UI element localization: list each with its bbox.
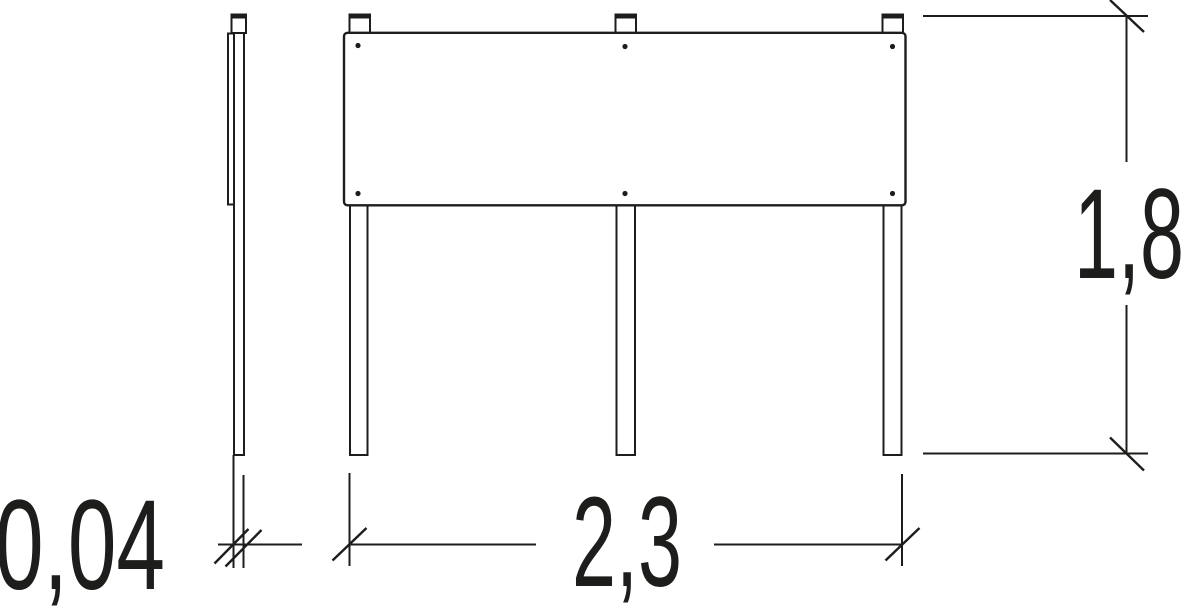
signboard-technical-drawing: 1,8 2,3 0,04 [0,0,1184,609]
screw-bottom-right [890,191,895,196]
side-view [228,14,247,456]
front-post-cap-center-top [615,14,638,19]
front-post-cap-right-top [882,14,905,19]
front-view [344,14,906,456]
side-post-cap-top [231,14,248,19]
dimension-thickness [215,455,303,568]
screw-top-left [355,43,360,48]
signboard-panel [344,33,906,206]
front-post-caps [349,14,905,34]
screw-top-right [890,44,895,49]
thickness-dimension-label: 0,04 [0,474,165,609]
height-dimension-label: 1,8 [1074,163,1184,306]
width-dimension-label: 2,3 [572,471,682,609]
screw-bottom-left [355,191,360,196]
side-board-edge [228,34,234,205]
screw-top-center [622,44,627,49]
side-post [234,16,244,455]
drawing-canvas: 1,8 2,3 0,04 [0,0,1184,609]
screw-bottom-center [622,191,627,196]
front-post-cap-left-top [349,14,372,19]
